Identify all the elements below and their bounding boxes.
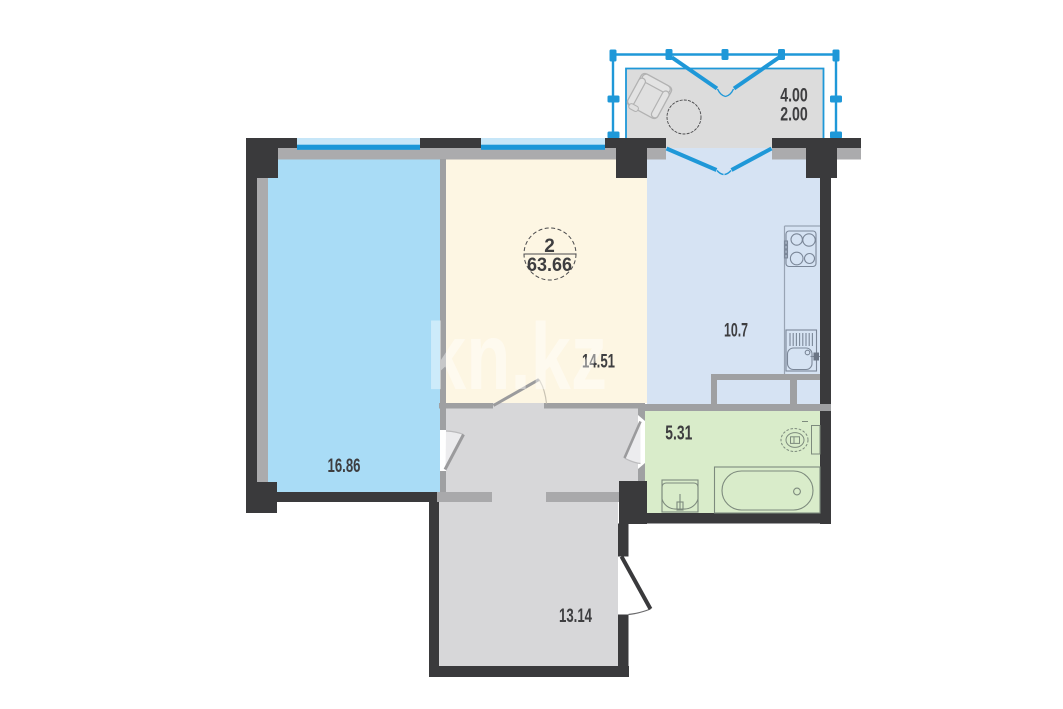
svg-text:10.7: 10.7 (724, 321, 748, 342)
svg-text:4.00: 4.00 (780, 86, 808, 107)
svg-text:63.66: 63.66 (527, 255, 572, 276)
svg-text:2: 2 (544, 236, 555, 257)
svg-text:13.14: 13.14 (559, 606, 592, 627)
svg-text:kn.kz: kn.kz (426, 304, 607, 410)
svg-text:16.86: 16.86 (328, 456, 361, 477)
svg-text:2.00: 2.00 (780, 105, 808, 126)
svg-text:5.31: 5.31 (665, 422, 692, 445)
